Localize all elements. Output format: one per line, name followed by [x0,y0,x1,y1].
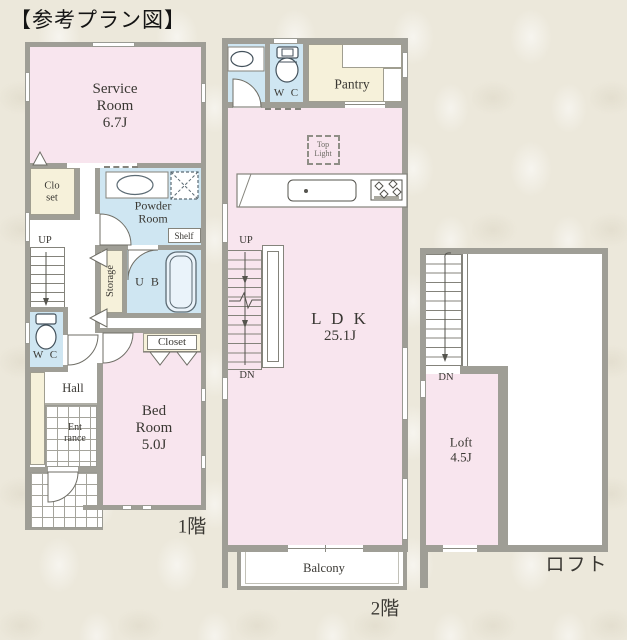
entrance-line2: rance [64,433,86,444]
kitchen-sink-icon [288,180,356,201]
floor1-up-label: UP [38,235,51,247]
floor1-wc-label: W C [33,349,59,361]
toilet-icon [36,314,56,324]
washbasin-icon [231,52,253,67]
door-arc [68,335,98,365]
storage-label: Storage [105,265,117,297]
ldk-label: L D K 25.1J [311,309,369,345]
stair-arrow-head [442,354,448,362]
floor2-label: 2階 [371,598,400,619]
service-room-size: 6.7J [93,114,138,131]
bed-room-line1: Bed [136,403,173,420]
loft-room-size: 4.5J [450,450,472,465]
bed-room-size: 5.0J [136,436,173,453]
service-room-label: Service Room 6.7J [93,81,138,131]
bed-room-line2: Room [136,420,173,437]
powder-room-line2: Room [135,213,172,226]
closet-upper-line2: set [44,192,59,204]
stove-base [374,196,399,200]
hall-label: Hall [62,381,84,395]
floor2-up-label: UP [239,235,252,247]
top-light-line2: Light [314,150,331,159]
door-arc [100,214,131,245]
entrance-door-arc [48,472,78,502]
service-room-line2: Room [93,98,138,115]
ldk-size: 25.1J [311,328,369,345]
washbasin-icon [117,176,153,195]
floor1-label: 1階 [178,516,207,537]
door-arc [233,79,261,107]
closet-upper-label: Clo set [44,180,59,204]
faucet-dot [304,189,308,193]
entrance-line1: Ent [64,422,86,433]
hanger-triangle-icon [177,352,197,365]
top-light-label: Top Light [314,141,331,159]
toilet-icon [36,325,56,349]
loft-label: ロフト [545,554,608,575]
loft-room-label: Loft 4.5J [450,435,472,464]
stair-arrow-hook [445,253,451,258]
door-arc [103,333,133,363]
toilet-tank-inner [282,49,293,56]
closet-upper-line1: Clo [44,180,59,192]
floor-plan-page: 【参考プラン図】 [0,0,627,640]
closet-label: Closet [158,336,186,348]
corner-triangle-icon [33,152,47,165]
entrance-label: Ent rance [64,422,86,444]
loft-room-name: Loft [450,435,472,450]
ldk-name: L D K [311,309,369,328]
floor2-dn-label: DN [239,370,254,382]
floor2-wc-label: W C [274,87,300,99]
folding-door-icon [90,309,107,327]
balcony-label: Balcony [303,561,345,575]
powder-room-line1: Powder [135,200,172,213]
stair-arrow-head [43,298,49,306]
hanger-triangle-icon [150,352,170,365]
stair-arrow-head [242,276,248,284]
bed-room-label: Bed Room 5.0J [136,403,173,453]
pantry-label: Pantry [334,76,369,91]
stair-arrow-head [242,320,248,328]
service-room-line1: Service [93,81,138,98]
unit-bath-label: U B [135,275,161,288]
shelf-label: Shelf [175,231,194,241]
loft-dn-label: DN [438,372,453,384]
powder-room-label: Powder Room [135,200,172,227]
